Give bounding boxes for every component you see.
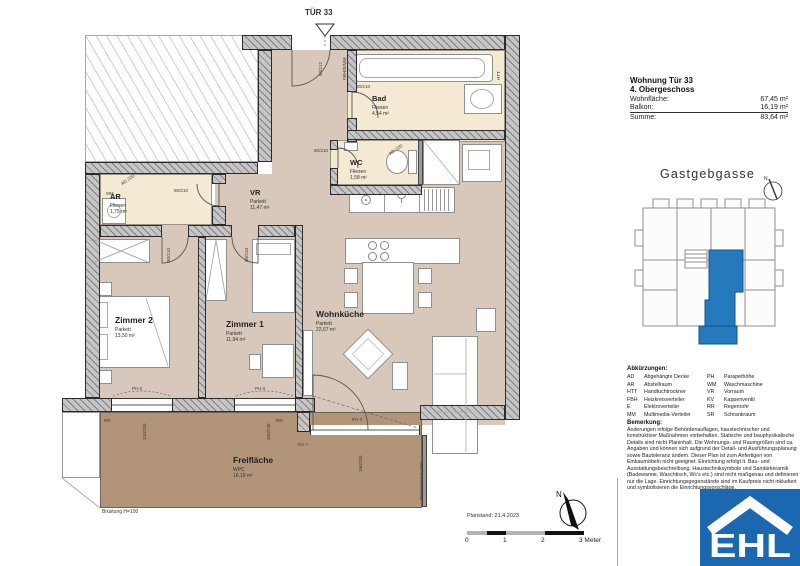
- room-label-wc: WC Fliesen 1,58 m²: [350, 152, 367, 182]
- staircase-area: [85, 35, 258, 162]
- wall: [330, 168, 338, 185]
- unit-title: Wohnung Tür 33: [630, 76, 788, 85]
- sofa: [432, 336, 478, 454]
- abbreviations-grid: ADAbgehängte Decke PHParapethöhe ARAbste…: [627, 374, 799, 418]
- washbasin-bowl: [470, 89, 494, 109]
- dining-chair: [418, 268, 432, 284]
- scale-tick-1: 1: [503, 537, 507, 544]
- area-row-total: Summe: 83,64 m²: [630, 114, 788, 121]
- ph0-window1: PH 0: [255, 386, 265, 391]
- abbreviations-heading: Abkürzungen:: [627, 366, 799, 372]
- highlighted-unit: [699, 250, 743, 344]
- ehl-logo: EHL: [700, 489, 800, 566]
- hob-icon-dot: [365, 199, 367, 201]
- entry-dim-label: 90/212: [318, 62, 323, 76]
- scalebar-segment: [545, 531, 584, 535]
- installs-label: FBH/E/MM: [342, 58, 347, 80]
- room-label-zimmer2: Zimmer 2 Parkett 13,50 m²: [115, 310, 153, 340]
- wall: [347, 130, 505, 140]
- room-label-zimmer1: Zimmer 1 Parkett 11,94 m²: [226, 314, 264, 344]
- svg-text:N: N: [556, 490, 562, 499]
- room-label-vr: VR Parkett 11,47 m²: [250, 182, 269, 212]
- site-plan: [633, 190, 785, 350]
- kv-label: KV ×: [298, 442, 308, 447]
- wc-sink: [344, 142, 358, 151]
- pillow: [256, 243, 291, 255]
- street-label: Gastgebgasse: [660, 167, 755, 181]
- wall: [172, 398, 235, 412]
- scalebar-segment: [487, 531, 506, 535]
- dining-chair: [344, 268, 358, 284]
- desk-chair: [249, 354, 261, 370]
- bath-door-dim: 80/210: [356, 84, 370, 89]
- shaft: [423, 140, 460, 185]
- ph0-terrace-door: PH 0: [352, 417, 362, 422]
- area-row: Wohnfläche: 67,45 m²: [630, 96, 788, 103]
- dining-chair: [418, 292, 432, 308]
- svg-text:N: N: [764, 176, 768, 182]
- coffee-table: [392, 362, 408, 390]
- ph0-window2: PH 0: [132, 386, 142, 391]
- unit-floor: 4. Obergeschoss: [630, 85, 788, 94]
- wall: [295, 225, 303, 398]
- sheet-divider: [617, 478, 618, 566]
- room-label-freiflaeche: Freifläche WPC 16,19 m²: [233, 450, 273, 480]
- room-label-wohnkueche: Wohnküche Parkett 22,67 m²: [316, 304, 364, 334]
- floorplan-sheet: TÜR 33 90/212 FBH/E/MM Bad Fliesen 4,54 …: [0, 0, 800, 566]
- open-door-leaf: [303, 330, 313, 396]
- dining-table: [362, 262, 414, 314]
- wall: [505, 35, 520, 420]
- neighbor-balcony: [62, 412, 100, 478]
- zimmer2-door-dim: 80/210: [166, 248, 171, 262]
- wall: [258, 50, 272, 162]
- wall: [330, 35, 505, 50]
- window-zimmer1: [235, 398, 295, 412]
- wall: [295, 398, 315, 412]
- trennwand-label: Trennwand H=200: [419, 462, 424, 500]
- wardrobe-open: [205, 239, 227, 301]
- shaft-wall: [418, 140, 423, 185]
- svg-text:EHL: EHL: [709, 527, 791, 564]
- htt-label: HTT: [496, 71, 501, 80]
- scalebar-segment: [506, 531, 545, 535]
- rr-label: RR: [276, 418, 283, 423]
- kitchen-island: [345, 238, 460, 264]
- room-label-bad: Bad Fliesen 4,54 m²: [372, 88, 389, 118]
- scale-tick-2: 2: [541, 537, 545, 544]
- wall: [188, 225, 232, 237]
- wardrobe: [92, 239, 150, 263]
- north-arrow-icon: N: [548, 486, 596, 534]
- drainer: [424, 189, 452, 211]
- wc-door-dim: 80/210: [314, 148, 328, 153]
- window-zimmer2: [112, 398, 172, 412]
- unit-info-block: Wohnung Tür 33 4. Obergeschoss Wohnfläch…: [630, 76, 788, 121]
- bathtub-inner: [359, 58, 485, 78]
- wall: [297, 412, 310, 432]
- ar-door-dim: 80/210: [174, 188, 188, 193]
- wall: [85, 174, 100, 398]
- wall: [62, 398, 112, 412]
- remark-heading: Bemerkung:: [627, 420, 799, 426]
- side-table: [476, 308, 496, 332]
- terrace-door: [310, 425, 420, 435]
- rr-label: RR: [104, 418, 111, 423]
- cooktop-burner: [380, 241, 389, 250]
- mini-compass-icon: N: [758, 172, 788, 204]
- wall: [100, 225, 162, 237]
- remark-block: Bemerkung: Änderungen infolge Behördenau…: [627, 420, 799, 492]
- kitchen-sink-basin: [468, 150, 490, 170]
- cooktop-burner: [380, 252, 389, 261]
- wall: [258, 225, 295, 237]
- abbreviations-block: Abkürzungen: ADAbgehängte Decke PHParape…: [627, 366, 799, 418]
- wall: [212, 174, 226, 184]
- wall: [330, 185, 422, 195]
- wall: [330, 140, 338, 150]
- wall: [242, 35, 292, 50]
- remark-text: Änderungen infolge Behördenauflagen, hau…: [627, 427, 799, 492]
- scale-tick-0: 0: [465, 537, 469, 544]
- bruestung-label: Brüstung H=100: [102, 510, 138, 516]
- scale-tick-3: 3 Meter: [579, 537, 601, 544]
- wall: [212, 206, 226, 225]
- wall: [85, 162, 258, 174]
- window-dim: 200/235: [142, 423, 147, 440]
- wall: [198, 237, 206, 398]
- zimmer1-door-dim: 80/210: [244, 248, 249, 262]
- wm-label: WM: [106, 192, 113, 197]
- cooktop-burner: [368, 252, 377, 261]
- planstand-label: Planstand: 21.4.2023: [467, 513, 519, 519]
- cooktop-burner: [368, 241, 377, 250]
- terrace-door-dim: 190/235: [358, 455, 363, 472]
- scalebar-segment: [467, 531, 487, 535]
- window-dim: 200/235: [266, 423, 271, 440]
- wall: [420, 405, 505, 420]
- toilet-tank: [408, 150, 417, 174]
- entrance-label: TÜR 33: [305, 8, 333, 17]
- glass-icon-stem: [401, 199, 402, 203]
- desk: [262, 344, 294, 378]
- area-row: Balkon: 16,19 m²: [630, 104, 788, 113]
